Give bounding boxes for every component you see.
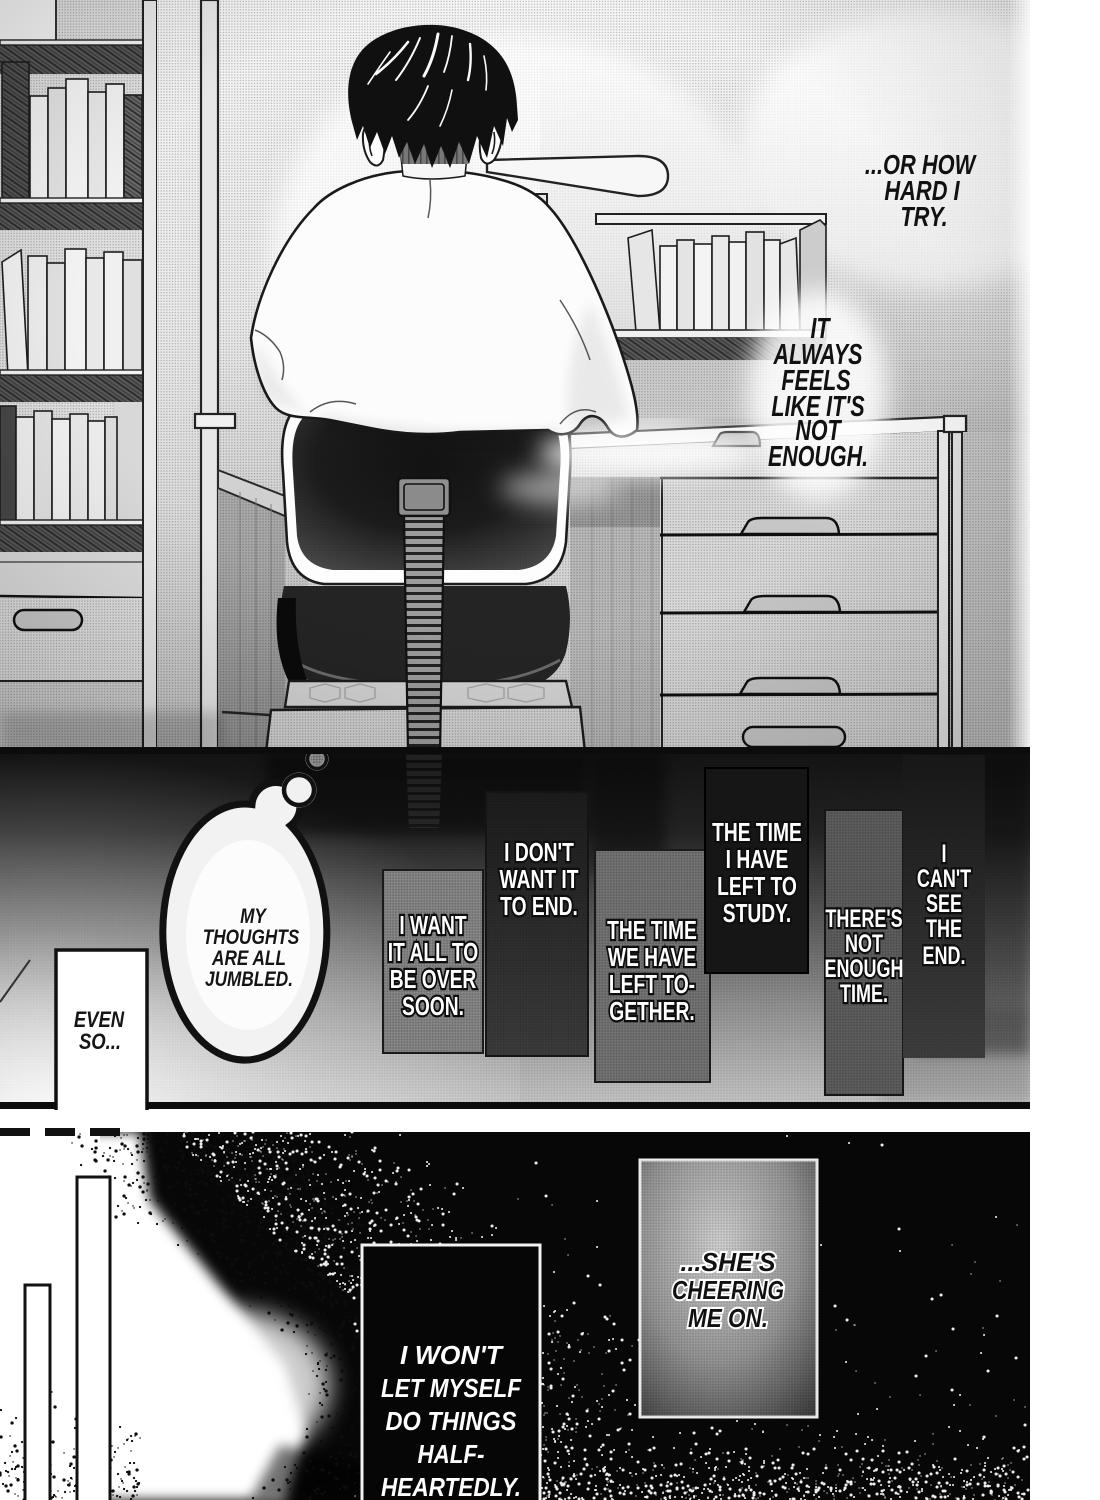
- svg-text:LEFT TO-: LEFT TO-: [609, 969, 695, 999]
- svg-text:CHEERING: CHEERING: [672, 1275, 784, 1305]
- svg-text:EVEN: EVEN: [74, 1009, 125, 1033]
- svg-text:HEARTEDLY.: HEARTEDLY.: [381, 1472, 521, 1500]
- svg-text:JUMBLED.: JUMBLED.: [205, 969, 293, 992]
- svg-text:ENOUGH.: ENOUGH.: [768, 441, 868, 473]
- svg-text:TRY.: TRY.: [900, 201, 947, 232]
- svg-text:WE HAVE: WE HAVE: [608, 942, 696, 972]
- svg-text:I WON'T: I WON'T: [400, 1340, 504, 1370]
- svg-text:LEFT TO: LEFT TO: [717, 871, 797, 901]
- svg-text:END.: END.: [923, 941, 966, 970]
- svg-text:I WANT: I WANT: [399, 910, 466, 940]
- svg-text:THE TIME: THE TIME: [712, 817, 802, 847]
- svg-text:HALF-: HALF-: [418, 1439, 485, 1469]
- svg-text:THE: THE: [926, 914, 962, 943]
- svg-text:LET MYSELF: LET MYSELF: [381, 1373, 522, 1403]
- svg-text:STUDY.: STUDY.: [723, 898, 791, 928]
- svg-text:ARE ALL: ARE ALL: [211, 948, 286, 971]
- svg-text:DO THINGS: DO THINGS: [386, 1406, 518, 1436]
- svg-text:SO...: SO...: [79, 1031, 121, 1055]
- svg-text:MY: MY: [240, 906, 268, 929]
- svg-text:TIME.: TIME.: [840, 979, 888, 1008]
- svg-text:BE OVER: BE OVER: [390, 964, 477, 994]
- svg-text:TO END.: TO END.: [500, 891, 578, 921]
- svg-text:SOON.: SOON.: [402, 991, 464, 1021]
- svg-text:...SHE'S: ...SHE'S: [681, 1247, 777, 1277]
- svg-text:THE TIME: THE TIME: [607, 915, 697, 945]
- svg-text:GETHER.: GETHER.: [609, 996, 694, 1026]
- svg-text:IT ALL TO: IT ALL TO: [388, 937, 478, 967]
- svg-text:WANT IT: WANT IT: [499, 864, 578, 894]
- svg-text:I HAVE: I HAVE: [726, 844, 789, 874]
- svg-text:I DON'T: I DON'T: [504, 837, 574, 867]
- svg-text:ME ON.: ME ON.: [688, 1303, 768, 1333]
- svg-text:THOUGHTS: THOUGHTS: [203, 927, 300, 950]
